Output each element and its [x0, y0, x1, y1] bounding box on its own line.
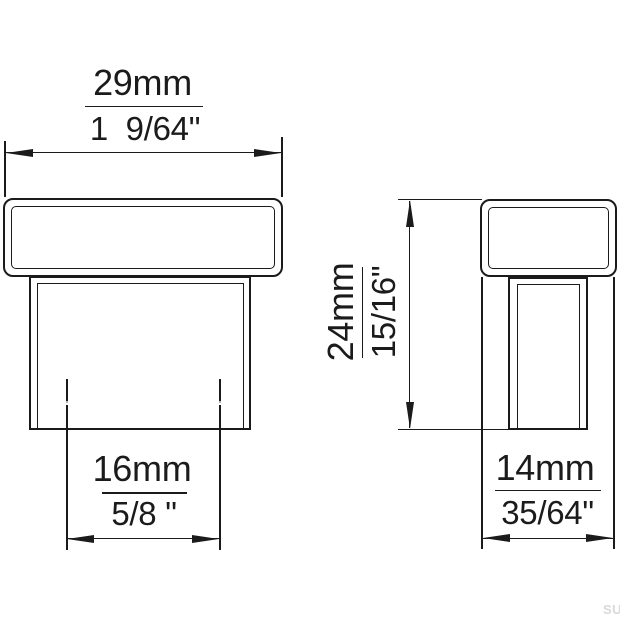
base-arrow-left-icon: [67, 535, 94, 543]
depth-extension-line-right: [613, 277, 614, 549]
width-fraction-bar: [85, 106, 203, 108]
watermark-text: SU: [603, 602, 620, 617]
width-dimension-line: [6, 152, 281, 153]
height-dimension-line: [409, 201, 410, 428]
width-extension-line-right: [281, 137, 282, 197]
front-centerline-right-dash: [219, 401, 221, 403]
height-mm-label: 24mm: [319, 212, 363, 412]
base-arrow-right-icon: [192, 535, 219, 543]
depth-fraction-bar: [495, 490, 602, 492]
width-arrow-left-icon: [6, 149, 33, 157]
height-inch-label: 15/16": [364, 212, 404, 412]
front-centerline-left-dash: [66, 401, 68, 403]
depth-mm-label: 14mm: [445, 449, 620, 487]
side-cap-inner-edge: [488, 207, 609, 269]
depth-arrow-left-icon: [483, 534, 510, 542]
width-mm-label: 29mm: [43, 64, 243, 102]
depth-arrow-right-icon: [586, 534, 613, 542]
front-centerline-left-upper: [66, 379, 68, 401]
depth-inch-label: 35/64": [448, 496, 620, 531]
front-body-inner-edge: [37, 283, 244, 429]
base-fraction-bar: [102, 492, 187, 494]
base-mm-label: 16mm: [42, 450, 242, 488]
height-arrow-down-icon: [406, 402, 414, 429]
height-tick-bottom: [398, 429, 509, 430]
front-centerline-right-upper: [219, 379, 221, 401]
height-arrow-up-icon: [406, 200, 414, 227]
base-inch-label: 5/8 ": [44, 497, 244, 532]
depth-extension-line-left: [481, 277, 482, 549]
height-fraction-bar: [362, 267, 364, 359]
side-body-inner-edge: [517, 284, 580, 429]
width-inch-label: 1 9/64": [45, 112, 245, 147]
width-arrow-right-icon: [254, 149, 281, 157]
technical-drawing-canvas: 29mm 1 9/64" 16mm 5/8 " 24mm 15/16": [0, 0, 620, 620]
front-cap-inner-edge: [11, 206, 275, 269]
